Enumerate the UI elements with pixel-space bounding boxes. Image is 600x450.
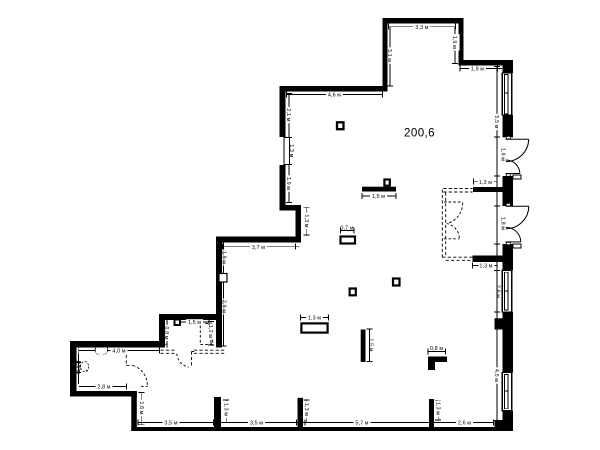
svg-text:0,8 м: 0,8 м bbox=[430, 346, 443, 352]
svg-text:2,9 м: 2,9 м bbox=[220, 300, 226, 313]
svg-text:1,3 м: 1,3 м bbox=[479, 264, 492, 270]
svg-text:3,5 м: 3,5 м bbox=[250, 420, 263, 426]
svg-text:1,9 м: 1,9 м bbox=[471, 67, 484, 73]
svg-text:1,5 м: 1,5 м bbox=[368, 338, 374, 351]
svg-text:1,2 м: 1,2 м bbox=[207, 325, 213, 338]
svg-text:1,3 м: 1,3 м bbox=[303, 214, 309, 227]
svg-text:1,3 м: 1,3 м bbox=[479, 180, 492, 186]
svg-text:5,5 м: 5,5 м bbox=[493, 115, 499, 128]
svg-text:1,5 м: 1,5 м bbox=[188, 320, 201, 326]
svg-text:2,1 м: 2,1 м bbox=[285, 108, 291, 121]
svg-text:3,5 м: 3,5 м bbox=[164, 420, 177, 426]
svg-text:1,3 м: 1,3 м bbox=[222, 403, 228, 416]
svg-text:3,7 м: 3,7 м bbox=[252, 245, 265, 251]
svg-text:4,6 м: 4,6 м bbox=[328, 93, 341, 99]
svg-text:1,9 м: 1,9 м bbox=[451, 36, 457, 49]
svg-text:5,7 м: 5,7 м bbox=[355, 420, 368, 426]
svg-text:0,8 м: 0,8 м bbox=[163, 326, 169, 339]
svg-text:1,5 м: 1,5 м bbox=[372, 194, 385, 200]
svg-text:200,6: 200,6 bbox=[404, 126, 435, 139]
svg-text:2,6 м: 2,6 м bbox=[458, 420, 471, 426]
svg-text:1,6 м: 1,6 м bbox=[138, 401, 144, 414]
svg-text:1,9 м: 1,9 м bbox=[285, 177, 291, 190]
svg-text:1,8 м: 1,8 м bbox=[500, 217, 506, 230]
svg-text:1,8 м: 1,8 м bbox=[500, 148, 506, 161]
svg-text:4,5 м: 4,5 м bbox=[493, 369, 499, 382]
svg-text:4,0 м: 4,0 м bbox=[112, 348, 125, 354]
svg-text:1,9 м: 1,9 м bbox=[220, 251, 226, 264]
svg-text:3,1 м: 3,1 м bbox=[386, 49, 392, 62]
svg-text:1,3 м: 1,3 м bbox=[303, 403, 309, 416]
svg-text:2,6 м: 2,6 м bbox=[495, 285, 501, 298]
svg-text:0,9 м: 0,9 м bbox=[75, 361, 81, 374]
svg-text:3,3 м: 3,3 м bbox=[415, 25, 428, 31]
svg-text:1,3 м: 1,3 м bbox=[308, 316, 321, 322]
svg-text:0,7 м: 0,7 м bbox=[340, 225, 353, 231]
svg-text:2,8 м: 2,8 м bbox=[97, 385, 110, 391]
svg-text:1,3 м: 1,3 м bbox=[434, 402, 440, 415]
